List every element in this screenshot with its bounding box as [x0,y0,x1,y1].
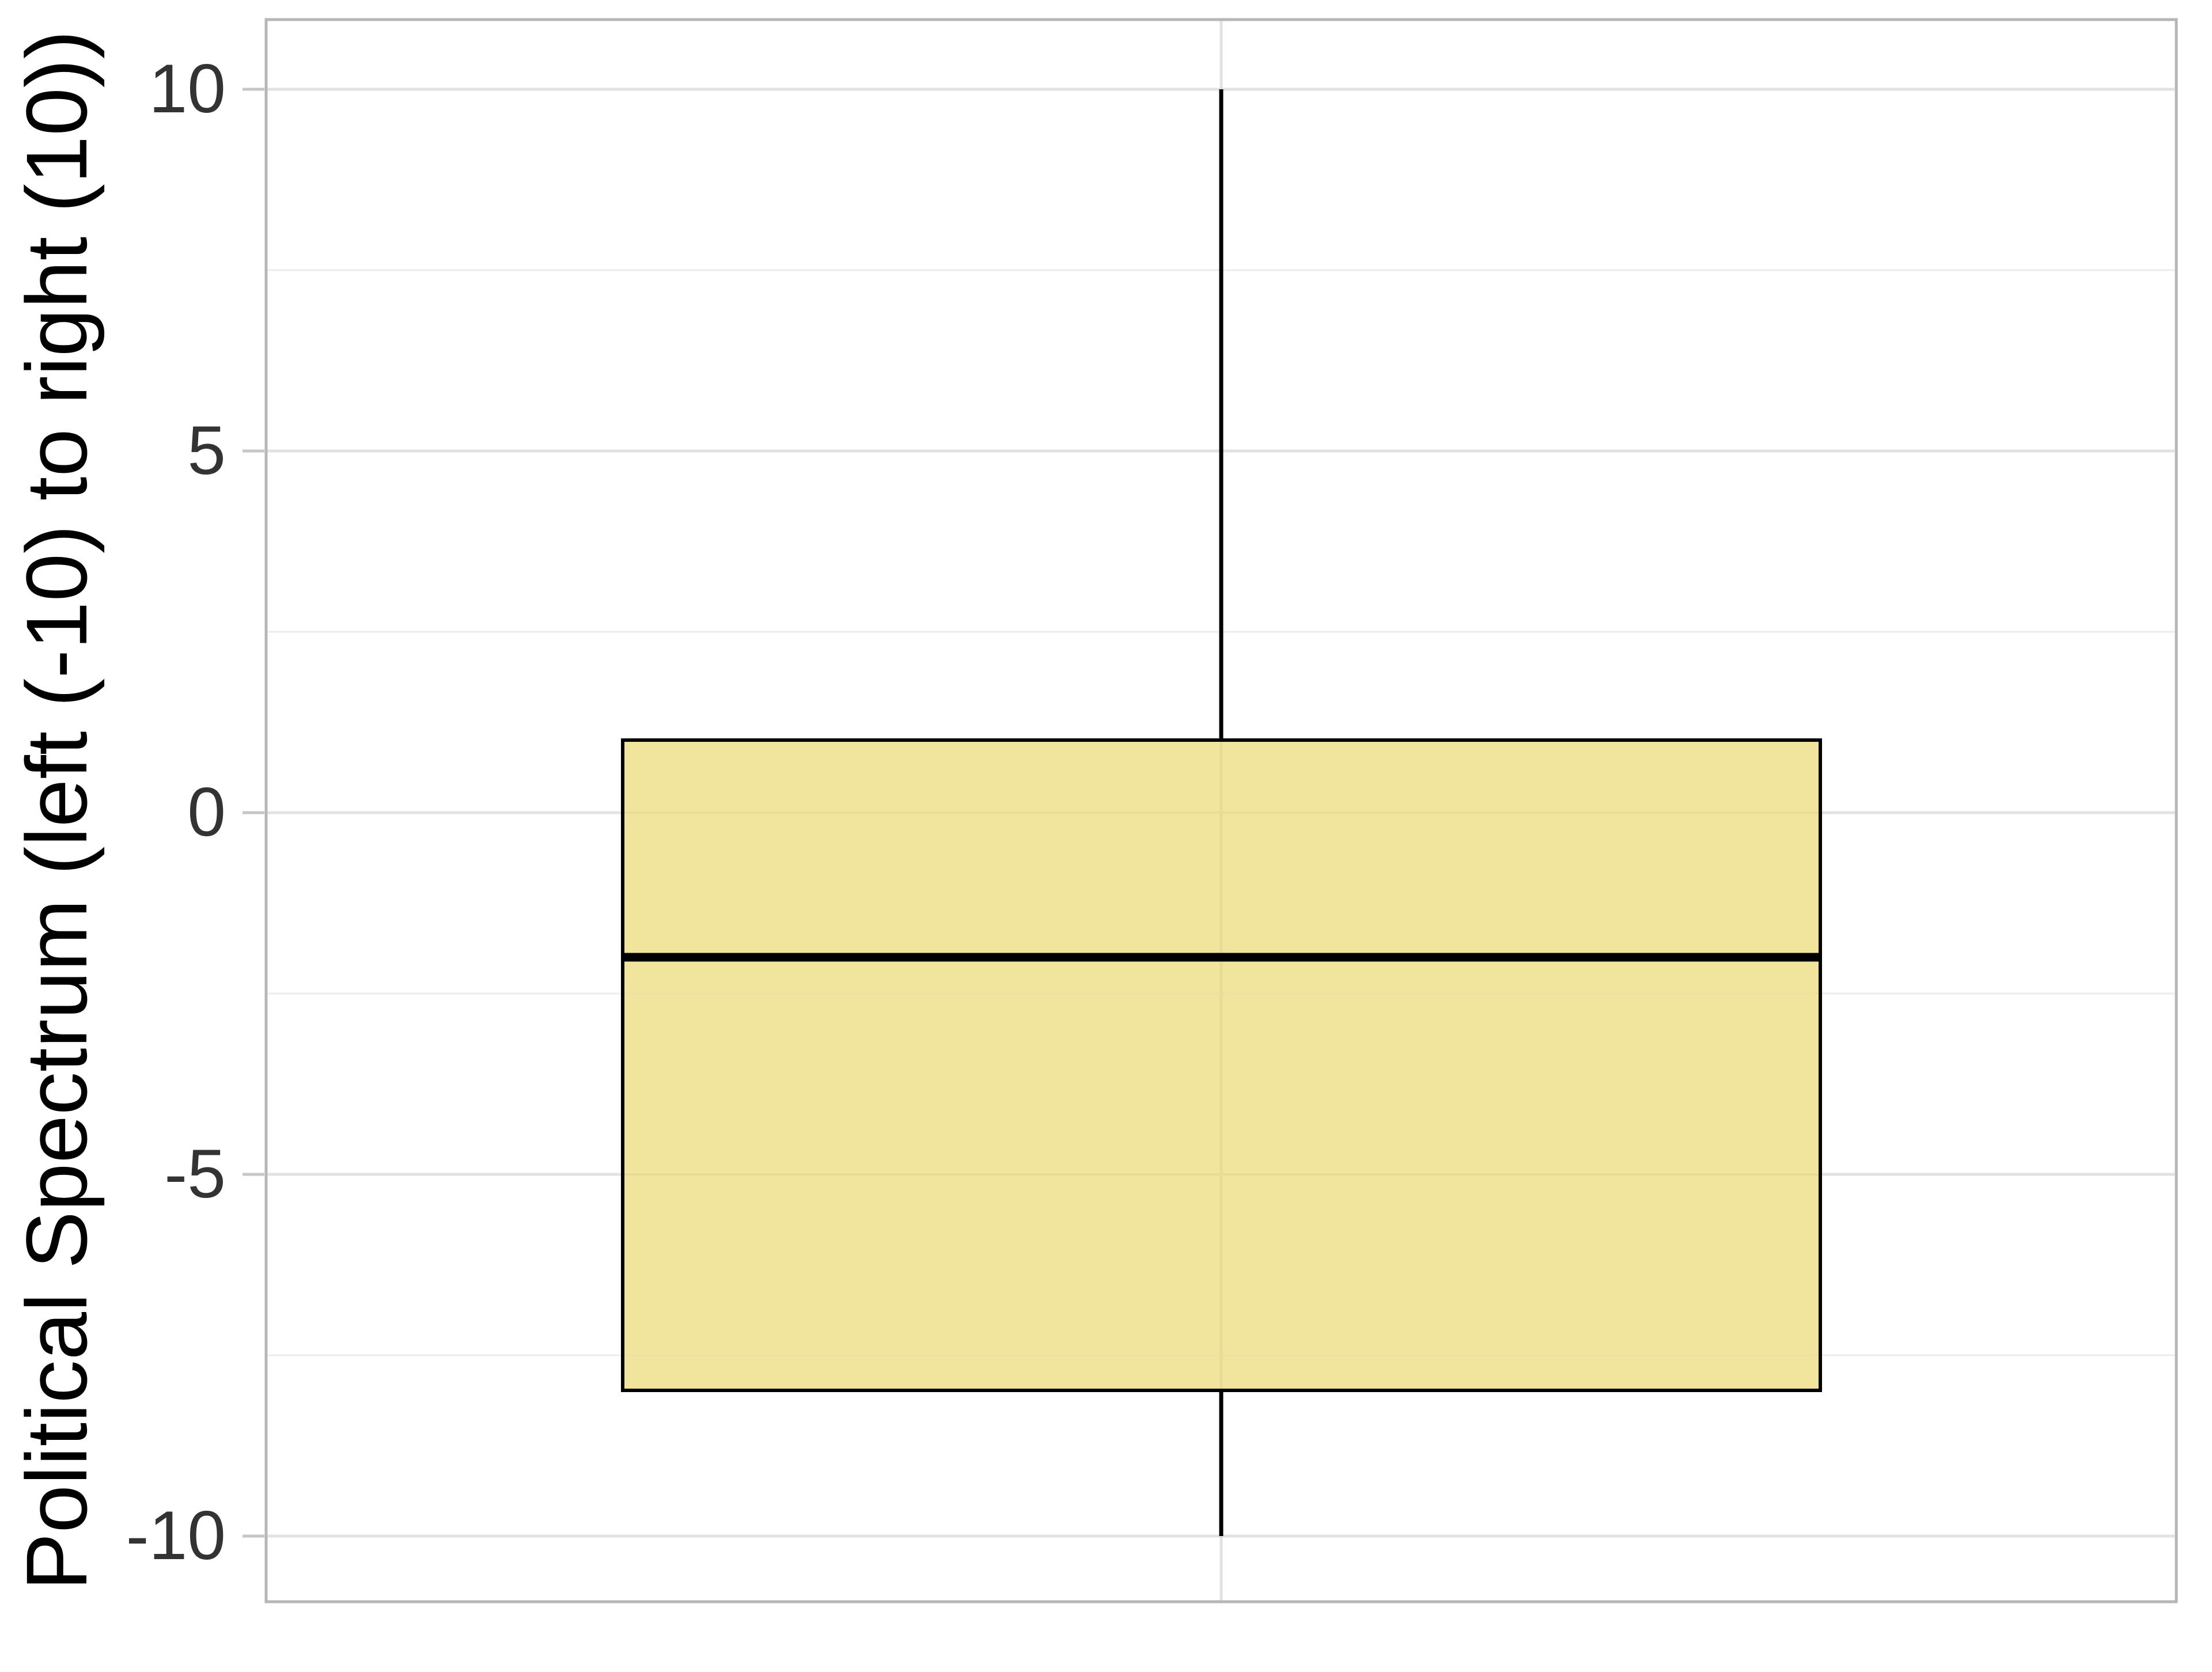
svg-text:0: 0 [187,774,226,851]
svg-text:-5: -5 [164,1135,226,1212]
svg-text:10: 10 [149,50,226,127]
svg-text:Political Spectrum (left (-10): Political Spectrum (left (-10) to right … [8,30,105,1590]
svg-text:-10: -10 [126,1497,226,1574]
svg-text:5: 5 [187,412,226,489]
